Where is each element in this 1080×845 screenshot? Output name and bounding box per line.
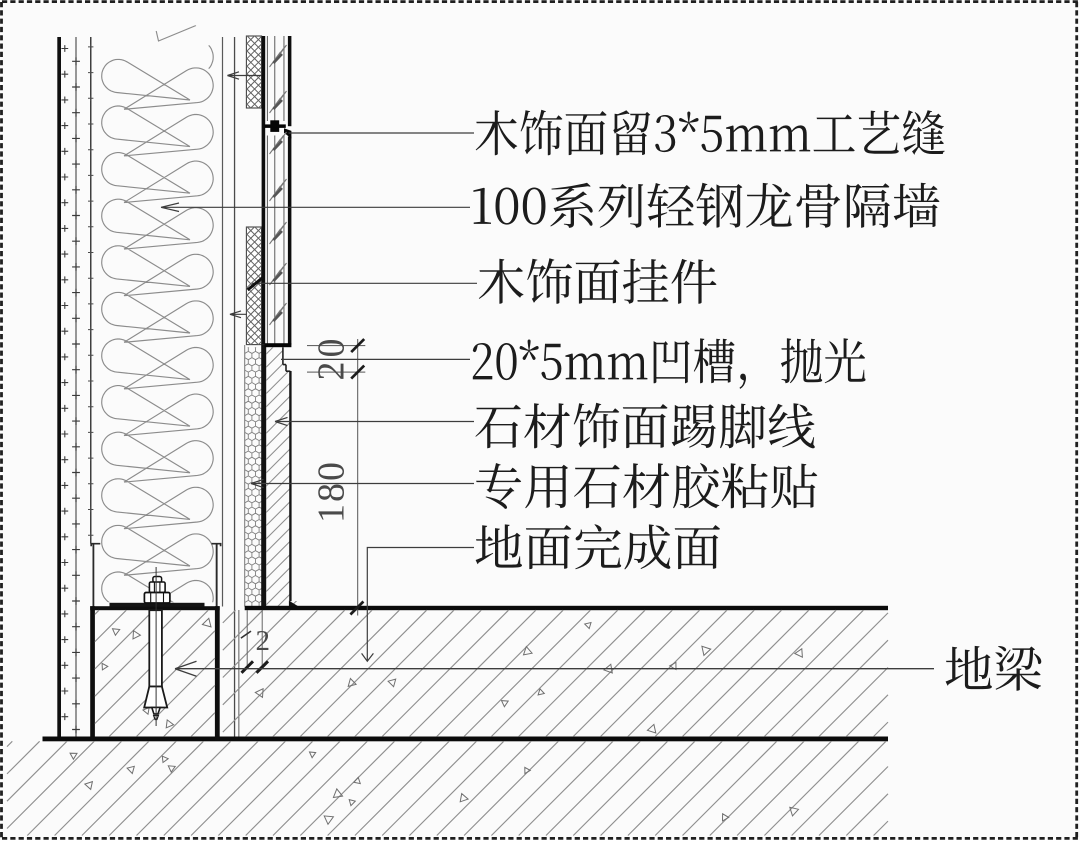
svg-text:20: 20 (311, 335, 353, 381)
svg-text:180: 180 (311, 460, 353, 523)
svg-text:2: 2 (256, 625, 271, 657)
